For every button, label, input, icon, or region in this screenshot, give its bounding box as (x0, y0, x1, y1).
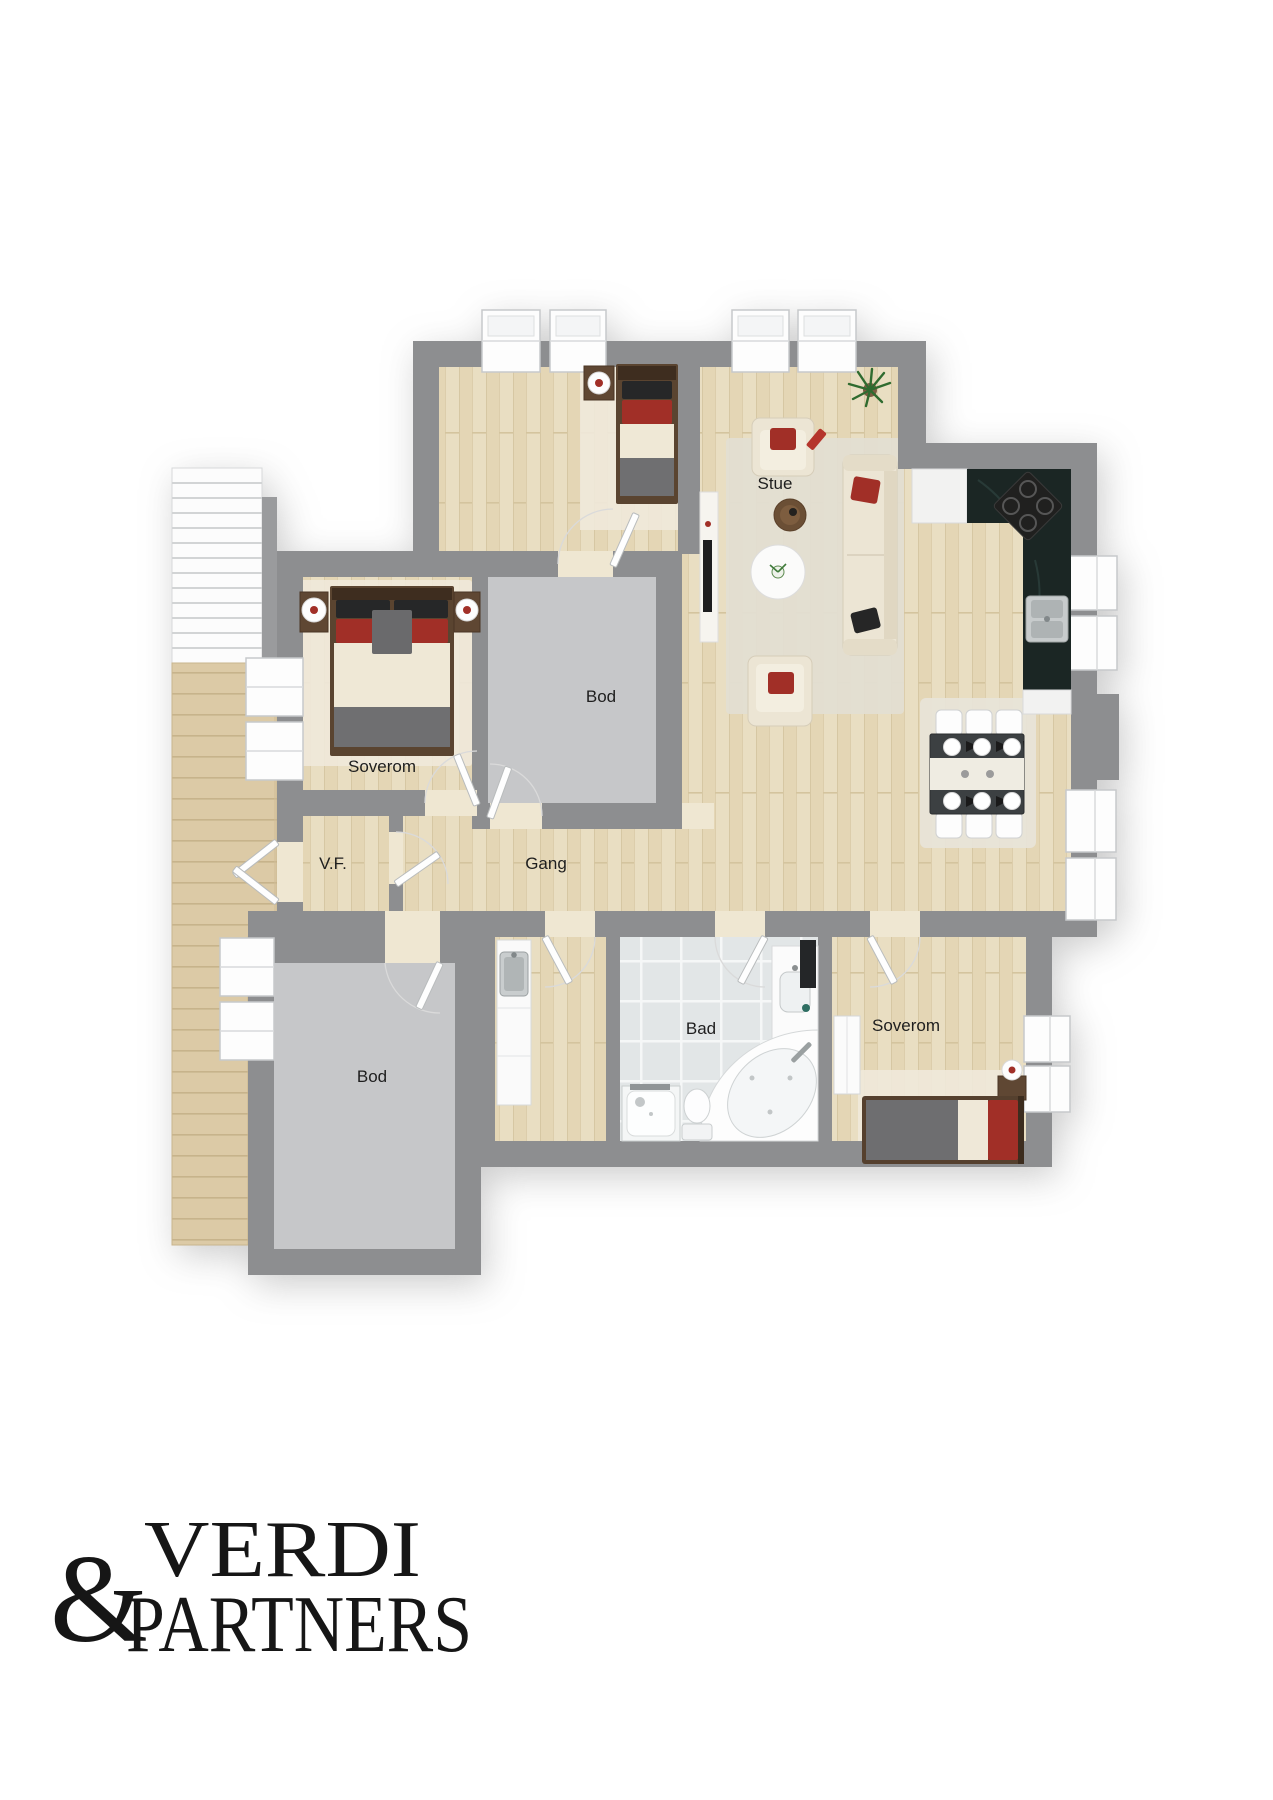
staircase (172, 468, 277, 663)
room-bod-south-floor (274, 963, 455, 1249)
coffee-table (751, 545, 805, 599)
window (1024, 1016, 1070, 1062)
window (1066, 790, 1116, 852)
shower (622, 1084, 680, 1141)
floor-plan-canvas: Stue Bod Soverom V.F. Gang Bad Soverom B… (0, 0, 1273, 1800)
armchair-north (752, 418, 814, 476)
window (246, 722, 303, 780)
label-stue: Stue (758, 474, 793, 493)
tv-sideboard (700, 492, 718, 642)
single-bed-south (862, 1096, 1024, 1164)
double-bed-master (330, 586, 454, 756)
side-table (774, 499, 806, 531)
window (1066, 858, 1116, 920)
floor-plan-page: Stue Bod Soverom V.F. Gang Bad Soverom B… (0, 0, 1273, 1800)
nightstand-top (584, 366, 614, 400)
label-vf: V.F. (319, 854, 347, 873)
toilet (682, 1089, 712, 1140)
label-soverom-master: Soverom (348, 757, 416, 776)
dining-set (930, 710, 1024, 838)
nightstand-master-left (300, 592, 328, 632)
window (798, 310, 856, 372)
label-bod-south: Bod (357, 1067, 387, 1086)
laundry-counter (497, 940, 531, 1105)
window (220, 1002, 274, 1060)
window (550, 310, 606, 372)
label-bod-mid: Bod (586, 687, 616, 706)
stair-side-wall (262, 497, 277, 663)
window (246, 658, 303, 716)
armchair-south (748, 656, 812, 726)
single-bed-top (616, 364, 678, 504)
label-bad: Bad (686, 1019, 716, 1038)
nightstand-master-right (454, 592, 480, 632)
logo-line2: PARTNERS (126, 1581, 472, 1669)
label-gang: Gang (525, 854, 567, 873)
floor-plan: Stue Bod Soverom V.F. Gang Bad Soverom B… (172, 310, 1119, 1275)
window (1069, 616, 1117, 670)
window (732, 310, 789, 372)
label-soverom-south: Soverom (872, 1016, 940, 1035)
sofa (843, 455, 897, 655)
window (1024, 1066, 1070, 1112)
window (220, 938, 274, 996)
kitchen-sink (1026, 596, 1068, 642)
window (1069, 556, 1117, 610)
window (482, 310, 540, 372)
wardrobe (834, 1016, 860, 1094)
brand-logo: & VERDI PARTNERS (50, 1506, 472, 1669)
